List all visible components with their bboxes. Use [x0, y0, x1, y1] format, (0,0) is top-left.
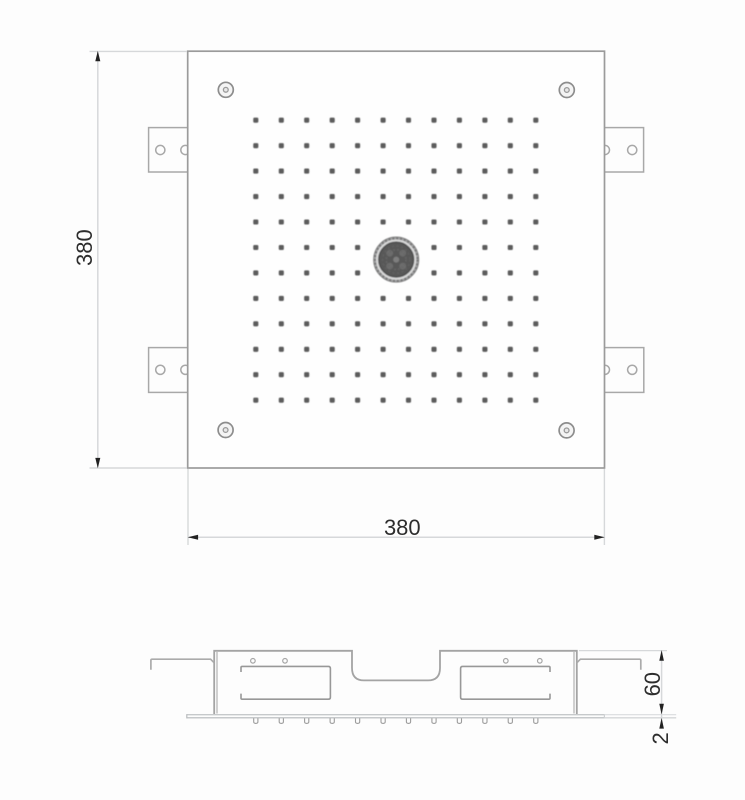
svg-text:2: 2 [648, 732, 673, 744]
svg-text:380: 380 [384, 515, 421, 540]
svg-text:60: 60 [640, 672, 665, 696]
svg-text:380: 380 [72, 229, 97, 266]
